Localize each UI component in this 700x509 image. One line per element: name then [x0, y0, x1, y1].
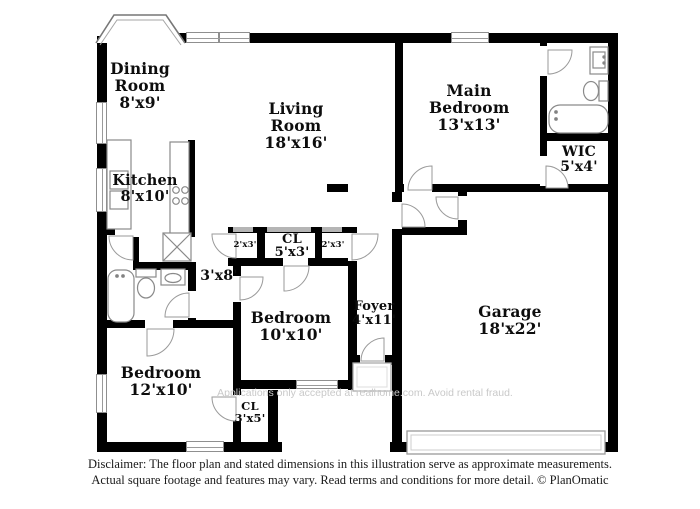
toilet-tank-icon — [136, 269, 156, 277]
room-label-dining: Dining Room 8'x9' — [105, 60, 175, 111]
faucet-icon — [555, 111, 558, 114]
opening-bedroom12 — [145, 320, 173, 328]
disclaimer-line-1: Disclaimer: The floor plan and stated di… — [0, 457, 700, 473]
window-mullion — [218, 33, 220, 42]
laundry-unit-cross-icon — [163, 233, 191, 261]
room-label-closet-bottom: CL 3'x5' — [226, 400, 274, 424]
room-label-bedroom-10x10: Bedroom 10'x10' — [236, 309, 346, 343]
toilet-bowl-icon — [584, 82, 599, 101]
room-label-main-bedroom: Main Bedroom 13'x13' — [429, 82, 509, 133]
door-bedroom-12 — [147, 329, 174, 356]
wall-exterior-right — [608, 33, 618, 452]
wall-living-south-stub — [327, 184, 348, 192]
wall-bath-wic-divider — [547, 133, 608, 141]
opening-hall-bath — [188, 291, 196, 318]
room-label-living: Living Room 18'x16' — [261, 100, 331, 151]
vanity-icon — [590, 47, 608, 74]
faucet-icon — [555, 118, 558, 121]
wall-laundry-bath-divider — [133, 262, 195, 270]
opening-main-bath — [540, 46, 547, 76]
opening-nook-garage — [458, 196, 467, 220]
watermark: Applications only accepted at realhome.c… — [200, 387, 530, 399]
room-label-closet-left: 2'x3' — [231, 241, 259, 250]
bay-window — [96, 15, 185, 45]
sink-basin-icon — [165, 274, 181, 283]
room-label-foyer: Foyer 4'x11' — [346, 300, 402, 329]
window-bedroom12-bottom — [186, 441, 224, 452]
door-hall-nook — [402, 204, 425, 227]
room-label-garage: Garage 18'x22' — [450, 303, 570, 337]
wall-kitchen-south-stub — [97, 227, 115, 235]
opening-closet-right — [348, 233, 357, 261]
room-label-closet-center: CL 5'x3' — [264, 233, 320, 259]
room-label-hall: 3'x8' — [194, 269, 244, 284]
faucet-icon — [116, 275, 119, 278]
wall-exterior-bottom-right — [390, 442, 618, 452]
bathtub-icon — [549, 105, 608, 133]
opening-hall-nook — [392, 202, 402, 229]
opening-front-door — [360, 355, 385, 365]
window-main-bedroom — [451, 32, 489, 43]
disclaimer: Disclaimer: The floor plan and stated di… — [0, 457, 700, 488]
room-label-wic: WIC 5'x4' — [549, 145, 609, 176]
opening-main-bedroom — [404, 184, 432, 192]
toilet-bowl-icon — [138, 278, 155, 298]
door-nook-garage — [436, 197, 458, 219]
bathtub-icon — [108, 270, 134, 322]
wall-living-mainbedroom — [395, 33, 403, 192]
faucet-icon — [603, 56, 605, 58]
window-living — [186, 32, 250, 43]
sink-basin-icon — [593, 52, 605, 68]
sink-icon — [161, 269, 185, 285]
door-kitchen-laundry — [109, 236, 133, 260]
disclaimer-line-2: Actual square footage and features may v… — [0, 473, 700, 489]
opening-wic — [540, 156, 547, 186]
laundry-unit — [163, 233, 191, 261]
room-label-kitchen: Kitchen 8'x10' — [100, 173, 190, 205]
wall-nook-south — [402, 227, 462, 235]
faucet-icon — [603, 62, 605, 64]
door-hall-bath — [165, 293, 189, 317]
floor-plan: Dining Room 8'x9' Living Room 18'x16' Ma… — [0, 0, 700, 509]
toilet-tank-icon — [599, 81, 608, 101]
door-main-bath — [548, 50, 572, 74]
faucet-icon — [122, 275, 125, 278]
door-closet-center — [284, 266, 309, 291]
room-label-closet-right: 2'x3' — [319, 241, 347, 250]
